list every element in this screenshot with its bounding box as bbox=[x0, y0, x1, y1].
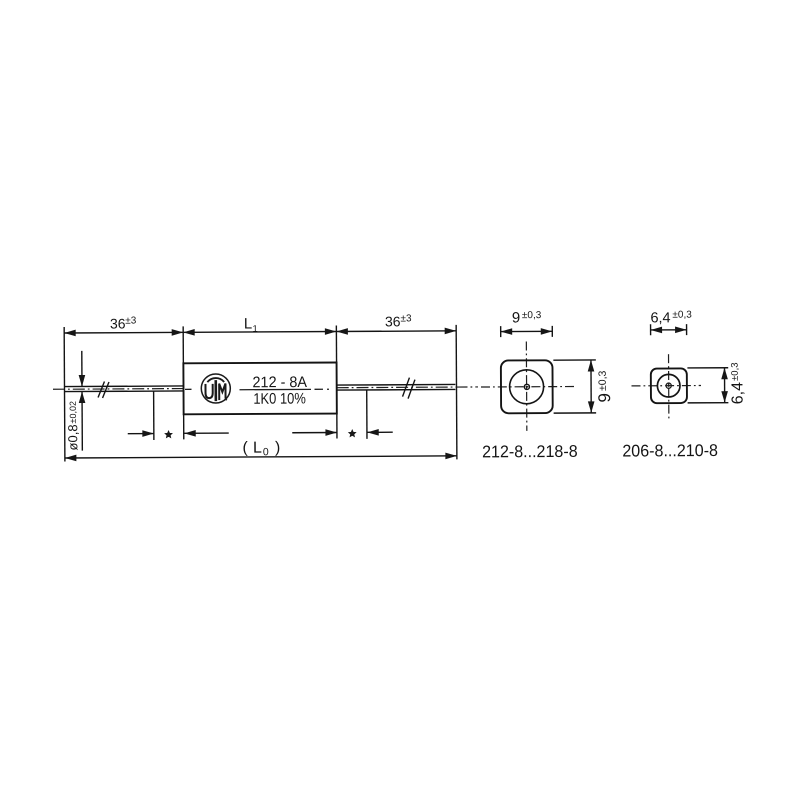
svg-text:ø0,8: ø0,8 bbox=[65, 424, 80, 450]
svg-text:36: 36 bbox=[110, 315, 126, 331]
svg-text:±0,3: ±0,3 bbox=[522, 310, 542, 321]
svg-text:9: 9 bbox=[595, 393, 614, 403]
svg-text:6,4: 6,4 bbox=[729, 382, 746, 404]
svg-text:(: ( bbox=[242, 440, 248, 457]
svg-text:L: L bbox=[244, 315, 252, 332]
svg-text:L: L bbox=[253, 440, 262, 457]
svg-text:9: 9 bbox=[512, 310, 520, 327]
svg-text:36: 36 bbox=[385, 313, 401, 329]
svg-text:±0,3: ±0,3 bbox=[597, 370, 609, 391]
svg-text:±0,02: ±0,02 bbox=[68, 401, 78, 424]
svg-text:): ) bbox=[275, 439, 280, 456]
svg-text:6,4: 6,4 bbox=[650, 310, 670, 326]
svg-text:212 - 8A: 212 - 8A bbox=[252, 374, 307, 391]
svg-text:1: 1 bbox=[252, 324, 257, 335]
svg-text:212-8...218-8: 212-8...218-8 bbox=[482, 442, 578, 462]
svg-text:206-8...210-8: 206-8...210-8 bbox=[622, 441, 718, 461]
svg-text:±3: ±3 bbox=[125, 316, 137, 327]
svg-text:±0,3: ±0,3 bbox=[672, 310, 692, 321]
svg-text:1K0 10%: 1K0 10% bbox=[253, 390, 306, 407]
svg-text:±3: ±3 bbox=[400, 313, 412, 324]
svg-text:0: 0 bbox=[263, 446, 269, 458]
svg-text:±0,3: ±0,3 bbox=[730, 362, 741, 380]
